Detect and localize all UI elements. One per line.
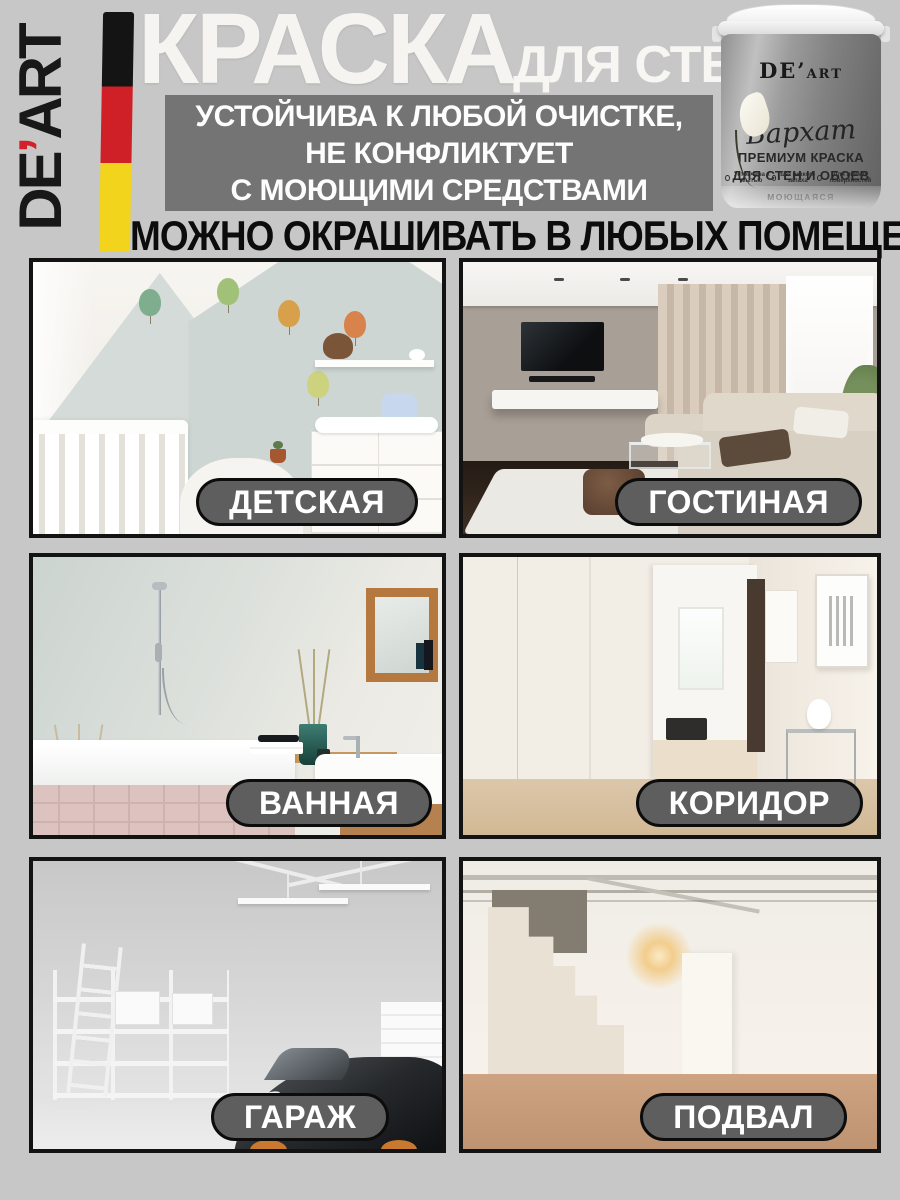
ceiling-spotlight: [678, 278, 688, 281]
logo-apostrophe: ’: [7, 140, 74, 154]
tv-screen: [521, 322, 604, 371]
frame-art: [829, 596, 854, 647]
badge-washable: Устойчива к мытью: [725, 172, 772, 184]
logo-de: DE: [7, 153, 74, 230]
balloon-mobile: [217, 278, 239, 305]
moose-plush: [323, 333, 353, 359]
room-label-nursery: ДЕТСКАЯ: [196, 478, 418, 526]
photo-garage: ГАРАЖ: [29, 857, 446, 1153]
pillow: [793, 406, 849, 439]
room-label-living: ГОСТИНАЯ: [615, 478, 862, 526]
benefit-line: С МОЮЩИМИ СРЕДСТВАМИ: [165, 172, 713, 209]
crib: [29, 420, 188, 538]
hanging-light: [238, 898, 348, 904]
room-label-garage: ГАРАЖ: [211, 1093, 389, 1141]
column: [682, 953, 732, 1080]
shower-head: [152, 582, 167, 590]
ceiling-truss: [288, 857, 441, 887]
room-label-basement: ПОДВАЛ: [640, 1093, 847, 1141]
barrel: [53, 1094, 90, 1134]
bench: [666, 718, 707, 740]
tray: [258, 735, 299, 742]
ceiling-pipe: [588, 876, 759, 913]
benefit-line: УСТОЙЧИВА К ЛЮБОЙ ОЧИСТКЕ,: [165, 98, 713, 135]
paint-bucket: DE’ART Бархат ПРЕМИУМ КРАСКА ДЛЯ СТЕН И …: [706, 4, 896, 216]
page-title: КРАСКА: [138, 0, 514, 98]
ceiling-spotlight: [620, 278, 630, 281]
potted-plant: [270, 449, 286, 463]
vase-grass: [313, 649, 315, 727]
ceiling-pipe: [463, 875, 877, 880]
room-floor: [653, 740, 757, 779]
light-rod: [287, 873, 289, 899]
picture-frame: [815, 574, 869, 669]
console-table: [786, 729, 856, 785]
badge-no-odor: Без резкого запаха: [772, 172, 817, 184]
logo-art: ART: [7, 25, 74, 139]
room-label-bathroom: ВАННАЯ: [226, 779, 432, 827]
flower-bouquet: [641, 433, 703, 447]
balloon-mobile: [139, 289, 161, 316]
washable-icon: [725, 175, 730, 181]
storage-box: [172, 993, 213, 1025]
window: [678, 607, 724, 690]
any-surface-icon: [817, 175, 822, 181]
white-vase: [807, 699, 832, 730]
tv-console: [492, 390, 658, 409]
changing-mat: [315, 417, 438, 433]
faucet: [356, 736, 360, 758]
photo-living-room: ГОСТИНАЯ: [459, 258, 881, 538]
shower-hose: [162, 668, 187, 724]
wardrobe: [747, 579, 766, 751]
bucket-bottom-rim: [721, 186, 881, 208]
storage-box: [115, 991, 160, 1026]
badge-any-surface: Для любых поверхностей: [817, 172, 877, 184]
no-odor-icon: [772, 175, 777, 181]
soundbar: [529, 376, 595, 382]
benefit-box: УСТОЙЧИВА К ЛЮБОЙ ОЧИСТКЕ, НЕ КОНФЛИКТУЕ…: [165, 95, 713, 211]
bucket-brand: DE’ART: [721, 58, 881, 83]
benefit-line: НЕ КОНФЛИКТУЕТ: [165, 135, 713, 172]
balloon-mobile: [278, 300, 300, 327]
german-flag-stripe: [99, 12, 134, 252]
towel-stack: [250, 742, 303, 755]
balloon-mobile: [307, 371, 329, 398]
photo-bathroom: ВАННАЯ: [29, 553, 446, 839]
vase-grass: [318, 649, 331, 726]
photo-corridor: КОРИДОР: [459, 553, 881, 839]
room-label-corridor: КОРИДОР: [636, 779, 863, 827]
hanging-light: [319, 884, 429, 890]
promo-banner: DE’ART КРАСКА ДЛЯ СТЕН УСТОЙЧИВА К ЛЮБОЙ…: [0, 0, 900, 1200]
bucket-badges: Устойчива к мытью Без резкого запаха Для…: [725, 172, 877, 184]
vase-grass: [298, 649, 311, 726]
car-wheel: [381, 1140, 418, 1153]
brand-logo: DE’ART: [6, 2, 75, 254]
photo-nursery: ДЕТСКАЯ: [29, 258, 446, 538]
section-headline: МОЖНО ОКРАШИВАТЬ В ЛЮБЫХ ПОМЕЩЕНИЯХ: [130, 213, 900, 258]
bucket-label: DE’ART Бархат ПРЕМИУМ КРАСКА ДЛЯ СТЕН И …: [721, 34, 881, 208]
photo-basement: ПОДВАЛ: [459, 857, 881, 1153]
picture-frame: [765, 590, 798, 662]
ceiling-spotlight: [554, 278, 564, 281]
shelf-bottle: [424, 640, 433, 670]
car-wheel: [250, 1140, 287, 1153]
shower-handle: [155, 643, 162, 662]
balloon-mobile: [344, 311, 366, 338]
